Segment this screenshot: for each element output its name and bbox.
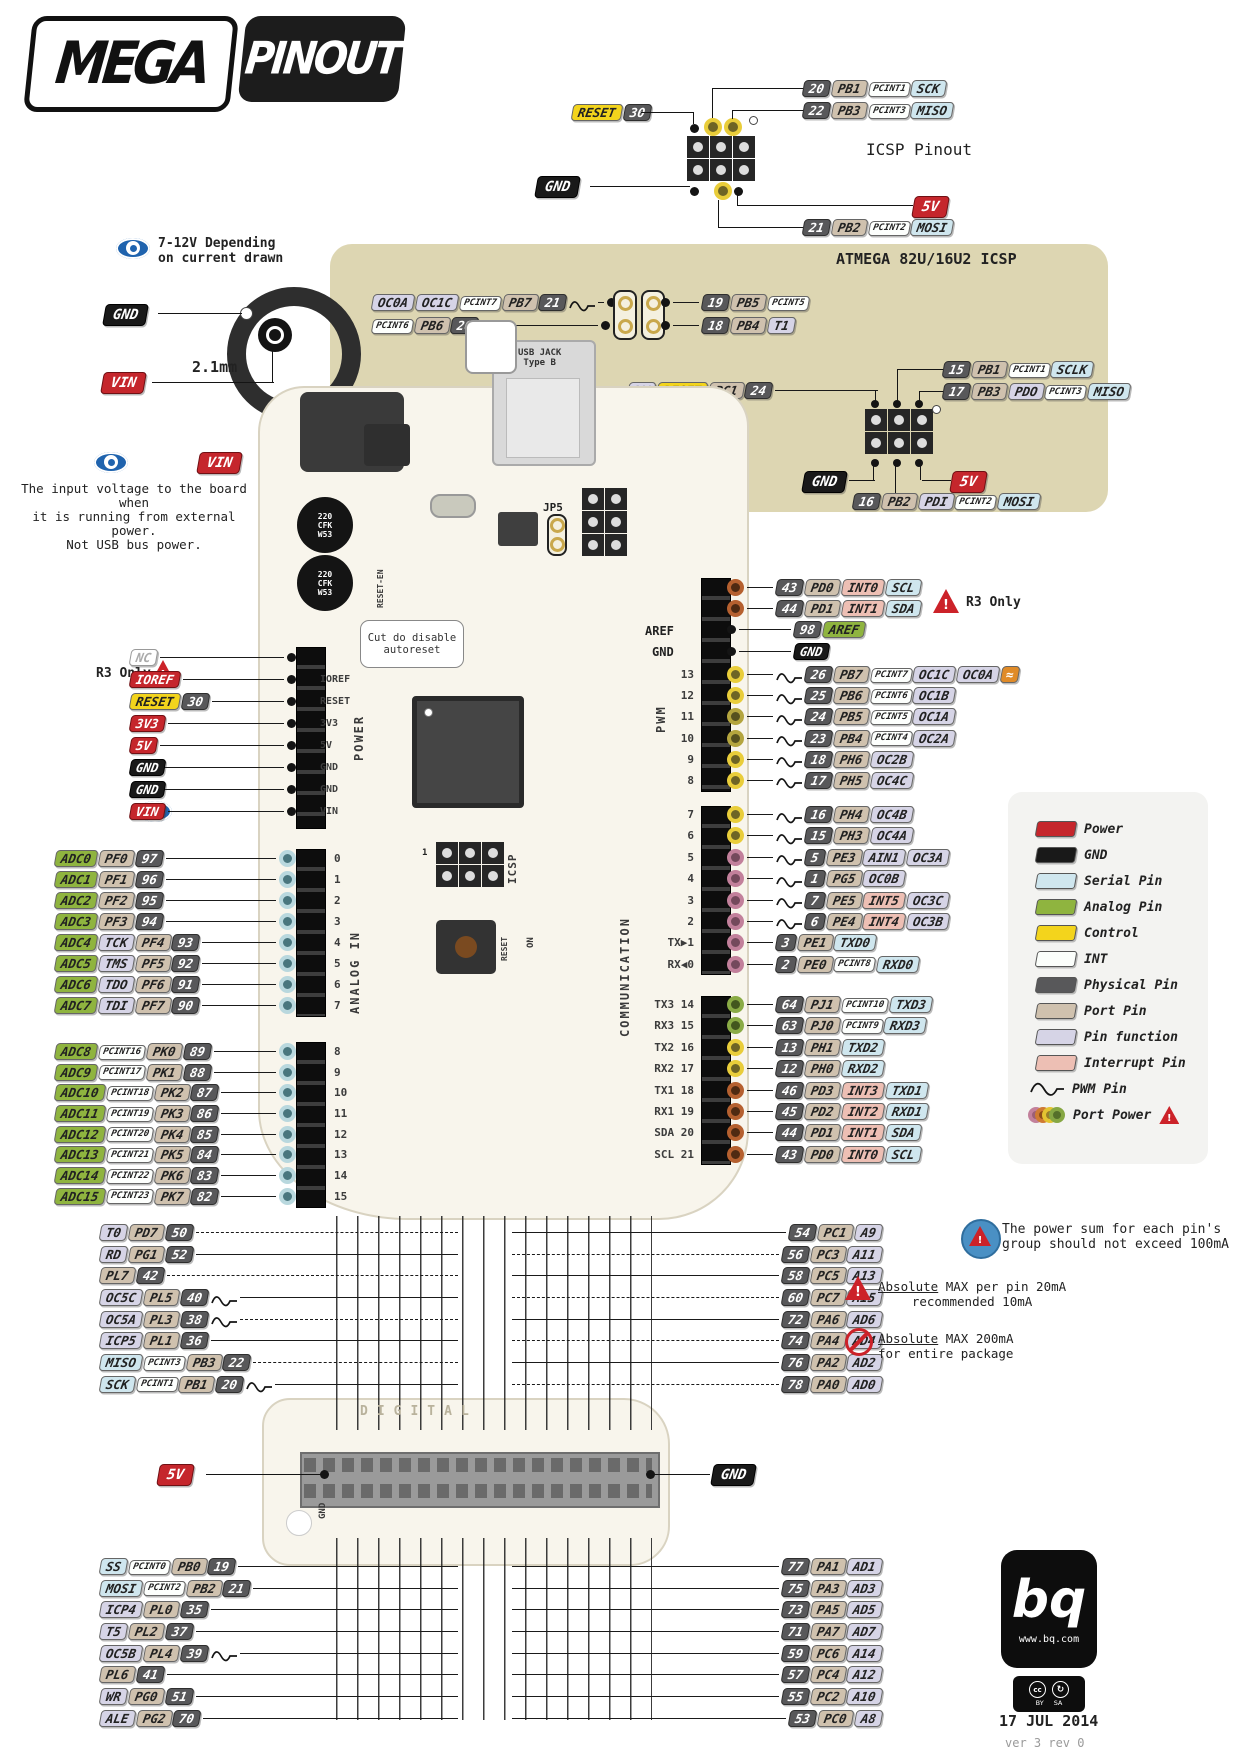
silk-label: 5V [320, 737, 350, 754]
pin-row: ADC15PCINT23PK782 [55, 1188, 296, 1205]
sa-icon: ↻ [1052, 1681, 1069, 1698]
pin-row: 22PB3PCINT3MISO [803, 102, 953, 119]
pin-row: 44PD1INT1SDA [727, 1124, 932, 1141]
connector-line [712, 88, 803, 89]
power-rail-label: POWER [352, 696, 366, 780]
pin-terminal [279, 1146, 296, 1163]
digital-rail-label: DIGITAL [360, 1404, 478, 1419]
pin-terminal [727, 1039, 744, 1056]
pin-row: ADC12PCINT20PK485 [55, 1126, 296, 1143]
pin-row: T5PL237 [100, 1623, 458, 1640]
connector-line [214, 1072, 276, 1073]
jp5-pads [547, 514, 567, 556]
pin-chip: 78 [780, 1376, 810, 1393]
pin-chip: PCINT5 [869, 710, 912, 725]
icsp-gnd-label: GND [534, 176, 581, 198]
pin-row: 5V [130, 737, 296, 754]
pwm-squiggle-icon [776, 732, 802, 744]
pin-chip: PCINT19 [105, 1107, 154, 1122]
pin-chip: PK2 [153, 1084, 191, 1101]
eye-icon [94, 452, 128, 473]
legend-label: PWM Pin [1072, 1082, 1127, 1097]
pin-chip: 16 [804, 806, 834, 823]
capacitor: 220CFKW53 [297, 497, 353, 553]
pin-terminal [727, 730, 744, 747]
pin-chip: 39 [179, 1645, 209, 1662]
pin-chip: PCINT2 [143, 1581, 186, 1596]
pin-chip: PE5 [825, 892, 863, 909]
jp5-header [582, 488, 627, 556]
pin-terminal [727, 1060, 744, 1077]
silk-label: 13 [334, 1146, 347, 1163]
footer-version: ver 3 rev 0 [1005, 1736, 1084, 1751]
connector-line [747, 942, 773, 943]
pin-terminal [727, 687, 744, 704]
pin-chip: 56 [780, 1246, 810, 1263]
pin-chip: AD6 [846, 1311, 884, 1328]
pin-pad [714, 182, 732, 200]
silk-label: TX▶1 [634, 934, 694, 951]
pin-terminal [727, 751, 744, 768]
analog-rail-label: ANALOG IN [348, 872, 362, 1072]
pin-chip: PL4 [143, 1645, 181, 1662]
pin-chip: 3V3 [129, 715, 167, 732]
connector-line [747, 587, 773, 588]
pin-row: NC [130, 649, 296, 666]
pwm-squiggle-icon [776, 809, 802, 821]
connector-line [747, 780, 773, 781]
legend-item: Analog Pin [1036, 898, 1186, 916]
connector-line [206, 1474, 322, 1475]
pin-terminal [727, 892, 744, 909]
pin-terminal [727, 870, 744, 887]
connector-line [739, 629, 791, 630]
pin-chip: PC2 [809, 1688, 847, 1705]
connector-line [240, 1297, 458, 1298]
pin-row: 53PC0A8 [512, 1710, 882, 1727]
legend-item: Interrupt Pin [1036, 1054, 1186, 1072]
pin-terminal [279, 892, 296, 909]
power-sum-line1: The power sum for each pin's [1002, 1222, 1229, 1237]
pin-chip: PL5 [143, 1289, 181, 1306]
pin-terminal [287, 675, 296, 684]
pin-terminal [287, 785, 296, 794]
no-symbol-icon [845, 1328, 873, 1356]
connector-line [747, 695, 773, 696]
pin-chip: 46 [775, 1082, 805, 1099]
silk-label: 15 [334, 1188, 347, 1205]
connector-line [739, 651, 791, 652]
pin-chip: PB1 [831, 80, 869, 97]
connector-line [641, 112, 694, 113]
pin-terminal [727, 913, 744, 930]
digital-rows-right1: 54PC1A9 56PC3A11 58PC5A13 60PC7A15 72PA6… [512, 1224, 882, 1393]
connector-line [240, 1653, 458, 1654]
silk-label: 8 [658, 772, 694, 789]
pin-chip: PD0 [804, 579, 842, 596]
legend-item: Power [1036, 820, 1186, 838]
legend-label: GND [1084, 848, 1107, 863]
connector-line [160, 745, 284, 746]
abs-rest: MAX 200mA [938, 1331, 1013, 1346]
abs-rest: MAX per pin 20mA [938, 1279, 1066, 1294]
pin-chip: PCINT1 [1007, 363, 1050, 378]
pin-chip: AD0 [846, 1376, 884, 1393]
mounting-hole [286, 1510, 312, 1536]
pin-chip: PA2 [809, 1354, 847, 1371]
pin-chip: 7 [804, 892, 827, 909]
pin-chip: AD3 [846, 1580, 884, 1597]
pin-chip: TXD0 [833, 934, 878, 951]
pin-row: IOREF [130, 671, 296, 688]
pin-chip: 21 [802, 219, 832, 236]
silk-label: 3 [634, 892, 694, 909]
pin-chip: A10 [846, 1688, 884, 1705]
pin-row: ADC10PCINT18PK287 [55, 1084, 296, 1101]
pin-chip: PF5 [134, 955, 172, 972]
pin-chip: 42 [135, 1267, 165, 1284]
cap-text: CFK [318, 579, 332, 588]
exclam: ! [943, 598, 949, 613]
legend-items: Power GND Serial Pin Analog Pin Control … [1036, 820, 1186, 1072]
pin-chip: 44 [775, 600, 805, 617]
pin-pad [932, 405, 941, 414]
vin-note-title: VIN [196, 452, 243, 474]
pin-row: 18PH6OC2B [727, 751, 1019, 768]
legend-swatch [1035, 1029, 1078, 1045]
pin-chip: AD7 [846, 1623, 884, 1640]
pin-row: 59PC6A14 [512, 1645, 882, 1662]
pin-chip: PH6 [833, 751, 871, 768]
pin-chip: 37 [164, 1623, 194, 1640]
pin-chip: 50 [164, 1224, 194, 1241]
power-sum-note: The power sum for each pin's group shoul… [1002, 1222, 1229, 1252]
silk-label: 2 [634, 913, 694, 930]
connector-line [747, 716, 773, 717]
pin-pad [690, 124, 699, 133]
bubble-line2: autoreset [384, 644, 441, 656]
pin-chip: PD7 [128, 1224, 166, 1241]
pwm-squiggle-icon [776, 894, 802, 906]
pin-chip: GND [129, 781, 167, 798]
pin-chip: PA1 [809, 1558, 847, 1575]
pin-row: GND [727, 643, 920, 660]
pin-chip: 21 [222, 1580, 252, 1597]
pin-terminal [279, 1105, 296, 1122]
pin-chip: PCINT1 [867, 82, 910, 97]
pin-row: OC5BPL439 [100, 1645, 458, 1662]
pin-pad [749, 116, 758, 125]
pin-chip: PB2 [185, 1580, 223, 1597]
pin-chip: ADC6 [54, 976, 99, 993]
icsp-center-header [436, 842, 504, 887]
pin-chip: 15 [942, 361, 972, 378]
pin-terminal [279, 1064, 296, 1081]
silk-label: RX1 19 [620, 1103, 694, 1120]
pin-chip: PF3 [98, 913, 136, 930]
pin-chip: 90 [171, 997, 201, 1014]
pin-chip: ICP5 [99, 1332, 144, 1349]
pin-chip: ADC8 [54, 1043, 99, 1060]
pin-row: 44PD1INT1SDA [727, 600, 920, 617]
legend-item: INT [1036, 950, 1186, 968]
cc-by-label: BY [1036, 1699, 1044, 1707]
pin-chip: TCK [98, 934, 136, 951]
pin-row: OC5APL338 [100, 1311, 458, 1328]
connector-line [221, 1154, 276, 1155]
pin-terminal [279, 1188, 296, 1205]
silk-label: 9 [334, 1064, 347, 1081]
legend-label: Power [1084, 822, 1123, 837]
connector-line [166, 921, 276, 922]
pin-terminal [287, 741, 296, 750]
pin-chip: 45 [775, 1103, 805, 1120]
pin-row: 74PA4AD4 [512, 1332, 882, 1349]
pin-row: 71PA7AD7 [512, 1623, 882, 1640]
bq-logo: bq www.bq.com [1001, 1550, 1097, 1668]
pin-chip: OC1B [912, 687, 957, 704]
pin-chip: 21 [538, 294, 568, 311]
pin-chip: A9 [853, 1224, 883, 1241]
pin-chip: AD5 [846, 1601, 884, 1618]
pin-chip: 17 [804, 772, 834, 789]
pin-chip: PCINT2 [867, 221, 910, 236]
pin-row: PL641 [100, 1666, 458, 1683]
pin-chip: ADC2 [54, 892, 99, 909]
pin-row: T0PD750 [100, 1224, 458, 1241]
pwm-squiggle-icon [776, 851, 802, 863]
silk-label: 10 [334, 1084, 347, 1101]
pin-chip: PL3 [143, 1311, 181, 1328]
pin-chip: 85 [190, 1126, 220, 1143]
pin-row: 16PH4OC4B [727, 806, 949, 823]
legend-swatch [1035, 1003, 1078, 1019]
pin-chip: SDA [884, 600, 922, 617]
pin-terminal [727, 1146, 744, 1163]
pin-chip: 91 [171, 976, 201, 993]
pin-chip: IOREF [129, 671, 182, 688]
pin-chip: 83 [190, 1167, 220, 1184]
pin-terminal [727, 1124, 744, 1141]
legend-label: Physical Pin [1084, 978, 1178, 993]
connector-line [718, 200, 719, 228]
connector-line [275, 1384, 458, 1385]
pin-terminal [727, 1103, 744, 1120]
pin-chip: 51 [164, 1688, 194, 1705]
pin-chip: 98 [793, 621, 823, 638]
connector-line [512, 1718, 786, 1719]
pin-row: ADC14PCINT22PK683 [55, 1167, 296, 1184]
pwm-rows-upper: 26PB7PCINT7OC1COC0A≈ 25PB6PCINT6OC1B 24P… [727, 666, 1019, 789]
pwm-squiggle-icon [776, 915, 802, 927]
pin-chip: PF6 [134, 976, 172, 993]
pin-chip: 15 [804, 827, 834, 844]
pin-chip: PCINT3 [143, 1356, 186, 1371]
connector-line [747, 921, 773, 922]
connector-line [221, 1175, 276, 1176]
analog-header-a [296, 849, 326, 1017]
pin-chip: 20 [802, 80, 832, 97]
abs-max-pkg-line2: for entire package [878, 1346, 1013, 1361]
pin-chip: PDO [1007, 383, 1045, 400]
strip-5v-label: 5V [156, 1464, 195, 1486]
legend-swatch [1035, 873, 1078, 889]
connector-line [920, 465, 921, 480]
pin-chip: OC3C [906, 892, 951, 909]
connector-line [512, 1631, 779, 1632]
pin-chip: 95 [134, 892, 164, 909]
pin-row: 63PJ0PCINT9RXD3 [727, 1017, 932, 1034]
pin-row: 20PB1PCINT1SCK [803, 80, 953, 97]
exclam: ! [855, 1285, 861, 1300]
atmega-right-rows: 19PB5PCINT5 18PB4T1 [661, 294, 881, 334]
cap-text: 220 [318, 570, 332, 579]
pin-chip: PE4 [825, 913, 863, 930]
pin-row: 57PC4A12 [512, 1666, 882, 1683]
cc-badge: cc ↻ BY SA [1013, 1676, 1085, 1712]
connector-line [895, 465, 896, 493]
pin-chip: ADC11 [54, 1105, 107, 1122]
pwm-squiggle-icon [776, 830, 802, 842]
warning-icon: ! [1159, 1106, 1179, 1124]
pin-chip: 96 [134, 871, 164, 888]
connector-line [732, 110, 733, 119]
pin-chip: 75 [780, 1580, 810, 1597]
pin-chip: 58 [780, 1267, 810, 1284]
pin-terminal [727, 849, 744, 866]
pin-chip: PB3 [185, 1354, 223, 1371]
pin-chip: PB4 [730, 317, 768, 334]
usb-jack-text: USB JACK Type B [518, 348, 561, 368]
legend-item: Control [1036, 924, 1186, 942]
connector-line [221, 1134, 276, 1135]
pin-terminal [727, 666, 744, 683]
pin-chip: PCINT23 [105, 1189, 154, 1204]
pin-row: 46PD3INT3TXD1 [727, 1082, 932, 1099]
pin-row: 18PB4T1 [661, 317, 881, 334]
pin-row: 54PC1A9 [512, 1224, 882, 1241]
pin-chip: AIN1 [862, 849, 907, 866]
pin-chip: 40 [179, 1289, 209, 1306]
connector-line [168, 723, 284, 724]
vin-note-line3: Not USB bus power. [8, 538, 260, 552]
pin-chip: PCINT7 [459, 296, 502, 311]
pin-chip: 36 [179, 1332, 209, 1349]
pin-chip: SCK [99, 1376, 137, 1393]
digital-rows-left1: T0PD750 RDPG152 PL742 OC5CPL540 OC5APL33… [100, 1224, 458, 1393]
pwm-squiggle-icon [569, 297, 595, 309]
pin-pad [690, 187, 699, 196]
pin-row: 15PH3OC4A [727, 827, 949, 844]
pin-chip: PB3 [971, 383, 1009, 400]
pin-chip: OC5C [99, 1289, 144, 1306]
pwm-squiggle-icon [211, 1647, 237, 1659]
pin-chip: PA4 [809, 1332, 847, 1349]
pin-chip: 54 [788, 1224, 818, 1241]
pin-chip: INT0 [840, 579, 885, 596]
pin-chip: 82 [190, 1188, 220, 1205]
usb-jack-line1: USB JACK [518, 348, 561, 358]
pin-chip: 19 [207, 1558, 237, 1575]
legend-item-pwm: PWM Pin [1030, 1080, 1127, 1098]
pin-chip: 12 [775, 1060, 805, 1077]
pin-chip: WR [99, 1688, 129, 1705]
pin-chip: PE3 [825, 849, 863, 866]
connector-line [712, 88, 713, 118]
connector-line [919, 391, 920, 401]
pin-terminal [279, 955, 296, 972]
connector-line [693, 112, 694, 124]
pin-pad [871, 400, 879, 408]
mega-pinout-diagram: MEGA PINOUT ICSP Pinout 20PB1PCINT1SCK 2… [0, 0, 1240, 1753]
pin-chip: PG2 [135, 1710, 173, 1727]
pin-chip: ADC10 [54, 1084, 107, 1101]
pin-chip: PCINT1 [135, 1377, 178, 1392]
pin-row: 43PD0INT0SCL [727, 1146, 932, 1163]
pin-chip: RXD0 [875, 956, 920, 973]
pin-chip: OC1A [912, 708, 957, 725]
abs-max-pin-line1: Absolute MAX per pin 20mA [878, 1279, 1066, 1294]
pin-chip: PB5 [833, 708, 871, 725]
pin-chip: PG5 [825, 870, 863, 887]
pin-row: ADC0PF097 [55, 850, 296, 867]
pin-chip: TXD3 [888, 996, 933, 1013]
connector-line [196, 1232, 458, 1233]
pin-chip: PCINT16 [98, 1045, 147, 1060]
pin-chip: INT2 [840, 1103, 885, 1120]
silk-label: 13 [658, 666, 694, 683]
connector-line [512, 1384, 779, 1385]
pin-chip: 2 [775, 956, 798, 973]
legend-swatch [1035, 925, 1078, 941]
pin-row: 77PA1AD1 [512, 1558, 882, 1575]
digital-rows-right2: 77PA1AD1 75PA3AD3 73PA5AD5 71PA7AD7 59PC… [512, 1558, 882, 1727]
pin-chip: 17 [942, 383, 972, 400]
silk-label: 8 [334, 1043, 347, 1060]
pin-row: GND [130, 759, 296, 776]
reset-en-label: RESET-EN [376, 556, 385, 622]
pin-terminal [279, 976, 296, 993]
atmega-right2-rows: 15PB1PCINT1SCLK 17PB3PDOPCINT3MISO [943, 361, 1130, 400]
pin-row: 25PB6PCINT6OC1B [727, 687, 1019, 704]
connector-line [747, 1132, 773, 1133]
pin-row: 78PA0AD0 [512, 1376, 882, 1393]
connector-line [747, 857, 773, 858]
pin-chip: PF0 [98, 850, 136, 867]
pin-chip: PB2 [831, 219, 869, 236]
exclam: ! [1167, 1113, 1172, 1124]
warning-icon: ! [933, 589, 959, 613]
usb-icon [465, 320, 517, 374]
pin-chip: 89 [182, 1043, 212, 1060]
pin-chip: 92 [171, 955, 201, 972]
silk-label: 6 [634, 827, 694, 844]
pwm-squiggle-icon [1030, 1081, 1064, 1097]
r3-only-right: R3 Only [966, 595, 1021, 610]
pin-pad [704, 118, 722, 136]
pin-chip: PCINT22 [105, 1169, 154, 1184]
pin-chip: 88 [182, 1064, 212, 1081]
legend-item: Port Pin [1036, 1002, 1186, 1020]
pin-chip: ADC7 [54, 997, 99, 1014]
silk-label: 12 [334, 1126, 347, 1143]
connector-line [747, 608, 773, 609]
pin-terminal [287, 697, 296, 706]
pin-row: 6PE4INT4OC3B [727, 913, 949, 930]
silk-label: 11 [334, 1105, 347, 1122]
power-silkscreen: IOREFRESET3V35VGNDGNDVIN [320, 671, 350, 820]
mcu-dot [424, 708, 433, 717]
